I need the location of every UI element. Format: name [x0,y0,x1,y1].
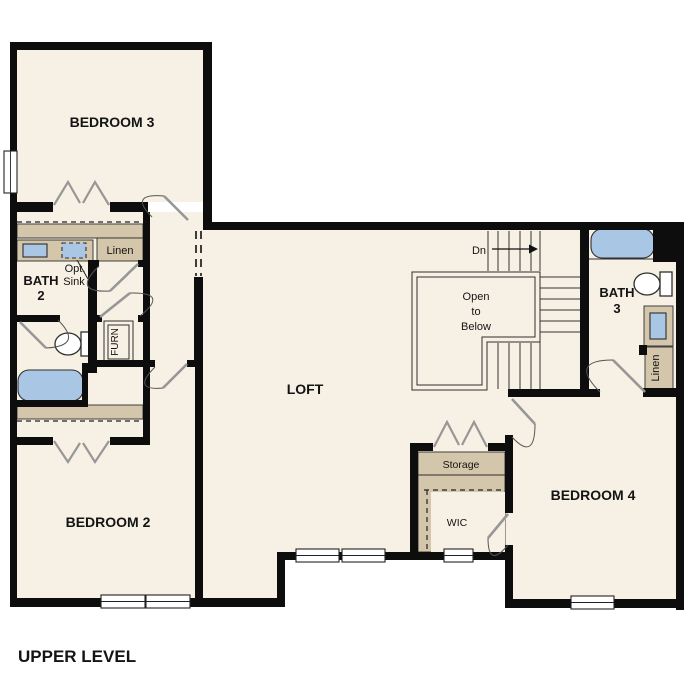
wall-east [676,222,684,610]
stairs-down-label: Dn [472,245,486,257]
wall-loft-south-c [384,552,445,560]
wall-chase-northeast [653,222,684,262]
wall-hall-east [194,277,203,367]
wic-window [444,549,473,562]
wall-nook-east [277,552,285,605]
wall-stairs-south [508,389,590,397]
wall-linen-right-south [643,388,676,397]
loft-nook-floor [203,437,277,598]
wall-bedroom4-bottom-left [505,599,572,608]
wall-furn-south [93,360,150,367]
furnace-label: FURN [110,328,121,356]
bedroom2-window-left [101,595,145,608]
bedroom2-label: BEDROOM 2 [66,514,151,530]
bedroom2-floor [17,402,203,598]
wall-bedroom4-west-b [505,545,513,608]
opt-sink-label-line2: Sink [63,276,85,288]
wall-tub-south [13,400,88,407]
wall-bedroom4-bottom-right [613,599,684,608]
bath3-label-line1: BATH [599,285,634,300]
wall-bedroom3-closet-a [17,202,53,212]
wall-bath2-compartment [13,315,60,322]
wall-stairs-east [580,222,589,397]
bath3-toilet-bowl [634,273,660,295]
floor-plan-page: BEDROOM 3 BATH 2 Linen Opt. Sink FURN LO… [0,0,687,687]
bedroom4-label: BEDROOM 4 [551,487,636,503]
open-to-below-line1: Open [463,291,490,303]
loft-label: LOFT [287,381,324,397]
wall-hall-west [143,212,150,367]
wall-bedroom2-east [195,367,203,600]
bedroom2-window-right [146,595,190,608]
bedroom2-closet-shelf [17,405,143,419]
storage-label: Storage [443,459,480,471]
bath2-toilet-bowl [55,333,81,355]
bath2-sink [23,244,47,257]
bath2-bathtub [18,370,83,401]
bedroom3-closet-shelf [17,224,143,238]
open-to-below-line3: Below [461,321,491,333]
plan-title: UPPER LEVEL [18,647,136,666]
bedroom3-label: BEDROOM 3 [70,114,155,130]
wall-furn-post-b [138,315,150,322]
wall-bath2-door-post-b [138,260,150,267]
wall-storage-post-b [488,443,513,451]
wall-linen-right-stub [639,345,647,355]
wic-floor [431,492,505,552]
wall-storage-west [410,443,418,552]
floor-plan-drawing: BEDROOM 3 BATH 2 Linen Opt. Sink FURN LO… [0,0,687,687]
bath3-label-line2: 3 [613,301,620,316]
bath3-toilet-tank [660,272,672,296]
wic-label: WIC [447,517,468,529]
wall-main-top [203,222,684,230]
bedroom3-window [4,151,17,193]
bath3-bathtub [591,229,654,258]
open-to-below-line2: to [471,306,480,318]
wall-bedroom2-bottom-a [10,598,103,607]
linen-right-label: Linen [650,355,662,382]
bedroom4-window [571,596,614,609]
wall-tub-east [82,367,88,405]
wall-west-upper [10,42,17,152]
linen-left-label: Linen [107,245,134,257]
bath3-sink [650,313,666,339]
bath2-label-line2: 2 [37,288,44,303]
wall-bedroom2-door-post-a [143,360,155,367]
wall-bedroom2-closet-b [110,437,150,445]
loft-window-right [342,549,385,562]
loft-window-left [296,549,339,562]
bath2-optional-sink [62,243,86,258]
wall-west-lower [10,192,17,607]
wall-bedroom2-closet-a [17,437,53,445]
wall-bedroom3-top [10,42,212,50]
wall-bedroom3-east [203,42,212,230]
bath2-label-line1: BATH [23,273,58,288]
